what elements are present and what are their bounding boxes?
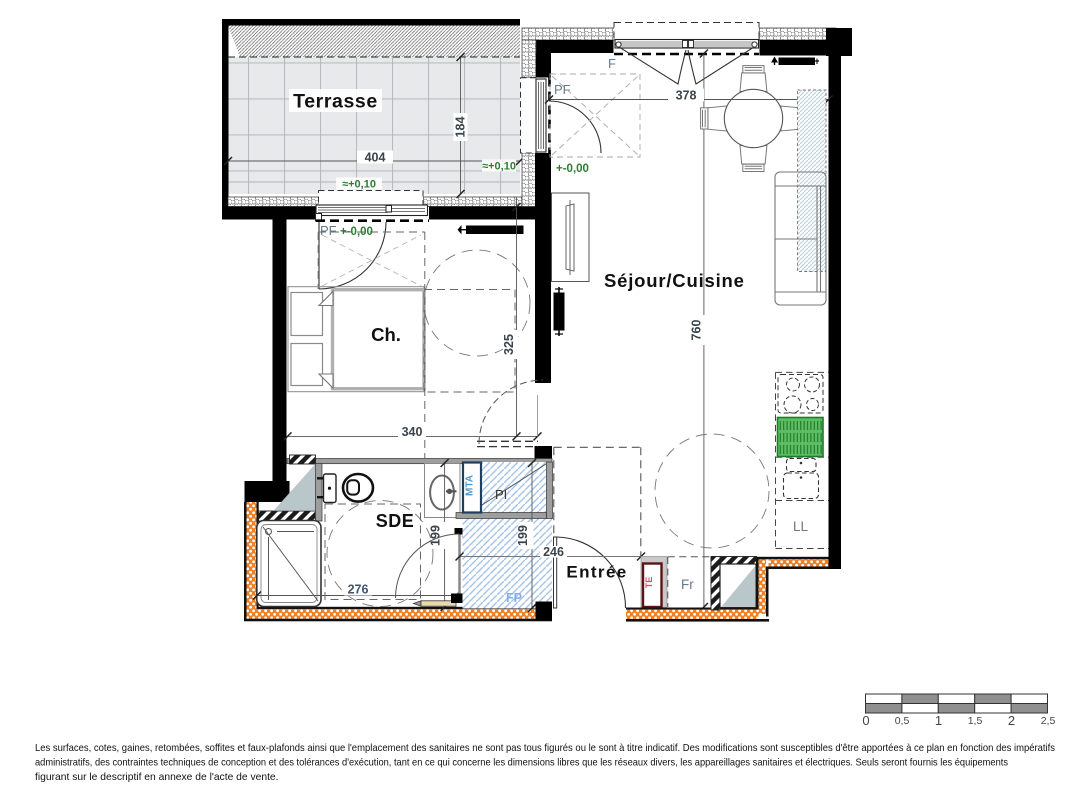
svg-text:administratifs, des contrainte: administratifs, des contraintes techniqu… (35, 758, 1008, 769)
svg-text:Entrée: Entrée (566, 563, 627, 582)
svg-text:2: 2 (1008, 713, 1015, 728)
svg-text:1: 1 (935, 713, 942, 728)
svg-text:+-0,00: +-0,00 (556, 163, 589, 175)
svg-text:FP: FP (506, 591, 522, 605)
svg-text:Fr: Fr (681, 577, 694, 592)
svg-text:Ch.: Ch. (371, 324, 401, 345)
svg-text:325: 325 (502, 334, 516, 355)
svg-text:0,5: 0,5 (895, 715, 910, 727)
svg-text:SDE: SDE (376, 511, 415, 531)
svg-text:PF: PF (554, 82, 571, 97)
svg-text:246: 246 (543, 545, 564, 559)
svg-text:LL: LL (793, 519, 809, 534)
svg-text:184: 184 (454, 117, 468, 138)
svg-text:Les surfaces, cotes, gaines, r: Les surfaces, cotes, gaines, retombées, … (35, 743, 1055, 754)
svg-text:199: 199 (429, 525, 443, 546)
svg-text:378: 378 (676, 89, 697, 103)
svg-text:Séjour/Cuisine: Séjour/Cuisine (604, 270, 745, 291)
svg-text:276: 276 (348, 583, 369, 597)
svg-text:F: F (608, 56, 616, 71)
svg-text:2,5: 2,5 (1041, 715, 1056, 727)
svg-text:Terrasse: Terrasse (293, 91, 378, 113)
svg-text:PI: PI (495, 487, 507, 502)
svg-text:760: 760 (690, 320, 704, 341)
svg-text:404: 404 (365, 151, 386, 165)
svg-text:≈+0,10: ≈+0,10 (482, 161, 516, 173)
svg-text:≈+0,10: ≈+0,10 (342, 179, 376, 191)
svg-text:1,5: 1,5 (968, 715, 983, 727)
svg-text:MTA: MTA (465, 475, 476, 496)
svg-text:340: 340 (402, 425, 423, 439)
svg-text:0: 0 (862, 713, 869, 728)
svg-text:figurant sur le descriptif en: figurant sur le descriptif en annexe de … (35, 772, 279, 783)
svg-text:TE: TE (644, 577, 654, 589)
svg-text:199: 199 (516, 525, 530, 546)
